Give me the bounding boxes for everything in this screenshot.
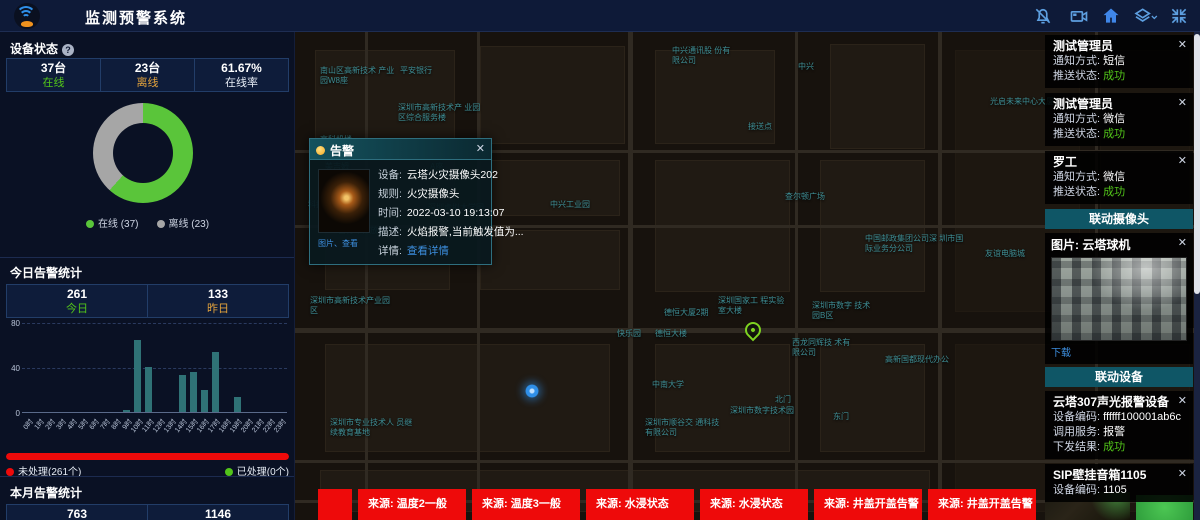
map-label: 南山区高新技术 产业园W8座: [320, 66, 400, 86]
alert-field-row: 设备:云塔火灾摄像头202: [378, 166, 488, 185]
map-label: 中兴工业园: [550, 200, 590, 210]
card-row: 通知方式: 短信: [1053, 54, 1185, 69]
alert-source-tile[interactable]: 来源: 水浸状态: [700, 489, 808, 520]
map-label: 中兴通讯股 份有限公司: [672, 46, 734, 66]
linked-device-header: 联动设备: [1045, 367, 1193, 387]
map-location-dot-icon[interactable]: [525, 384, 539, 398]
today-alerts-stats: 261 今日 133 昨日: [6, 284, 289, 318]
donut-legend: 在线 (37)离线 (23): [0, 215, 295, 230]
map-label: 深圳市高新技术产 业园区综合服务楼: [398, 103, 488, 123]
home-icon[interactable]: [1100, 6, 1122, 26]
unhandled-dot-icon: [6, 468, 14, 476]
device-status-donut-chart: [93, 103, 193, 203]
left-panel: 设备状态? 37台 在线 23台 离线 61.67% 在线率 在线 (37)离线…: [0, 32, 295, 520]
camera-snapshot-image[interactable]: [1051, 257, 1187, 341]
map-label: 北门: [775, 395, 791, 405]
bar: [190, 372, 197, 413]
app-header: 监测预警系统: [0, 0, 1200, 32]
card-row: 设备编码: ffffff100001ab6c: [1053, 410, 1185, 425]
alert-fields: 设备:云塔火灾摄像头202规则:火灾摄像头时间:2022-03-10 19:13…: [378, 166, 488, 261]
map-label: 平安银行: [400, 66, 432, 76]
month-alerts-title: 本月告警统计: [10, 484, 82, 501]
monitoring-dashboard: 监测预警系统 南山区高新技术: [0, 0, 1200, 520]
close-icon[interactable]: ✕: [1178, 154, 1187, 167]
linked-device-card: SIP壁挂音箱1105✕设备编码: 1105: [1045, 464, 1193, 502]
bar: [145, 367, 152, 412]
stat-online-rate: 61.67% 在线率: [195, 59, 288, 91]
notification-stack: 测试管理员✕通知方式: 短信推送状态: 成功测试管理员✕通知方式: 微信推送状态…: [1045, 35, 1193, 204]
map-label: 深圳市高新技术产业园区: [310, 296, 395, 316]
close-icon[interactable]: ✕: [1178, 96, 1187, 109]
alert-popup: 告警 ✕ 图片、查看 设备:云塔火灾摄像头202规则:火灾摄像头时间:2022-…: [309, 138, 492, 265]
card-row: 推送状态: 成功: [1053, 185, 1185, 200]
map-label: 深圳市顺谷交 通科技有限公司: [645, 418, 725, 438]
linked-device-stack: 云塔307声光报警设备✕设备编码: ffffff100001ab6c调用服务: …: [1045, 391, 1193, 502]
card-row: 调用服务: 报警: [1053, 425, 1185, 440]
alert-field-row: 描述:火焰报警,当前触发值为...: [378, 223, 488, 242]
notification-card: 测试管理员✕通知方式: 微信推送状态: 成功: [1045, 93, 1193, 146]
card-row: 通知方式: 微信: [1053, 170, 1185, 185]
bell-icon[interactable]: [1032, 6, 1054, 26]
video-camera-icon[interactable]: [1068, 6, 1090, 26]
map-label: 深圳市专业技术人 员继续教育基地: [330, 418, 420, 438]
alert-source-tile[interactable]: 来源: 温度3一般: [472, 489, 580, 520]
bar: [123, 410, 130, 412]
app-title: 监测预警系统: [85, 7, 187, 28]
map-label: 德恒大厦2期: [664, 308, 708, 318]
card-title: 罗工: [1053, 155, 1185, 170]
map-label: 西龙同辉技 术有限公司: [792, 338, 854, 358]
card-row: 通知方式: 微信: [1053, 112, 1185, 127]
popup-title: 告警: [330, 144, 354, 158]
alarm-bulb-icon: [316, 146, 325, 155]
bar: [212, 352, 219, 412]
map-label: 德恒大楼: [655, 329, 687, 339]
alert-field-row: 规则:火灾摄像头: [378, 185, 488, 204]
card-row: 下发结果: 成功: [1053, 440, 1185, 455]
unhandled-progress-fill: [6, 453, 289, 460]
card-title: 云塔307声光报警设备: [1053, 395, 1185, 410]
close-icon[interactable]: ✕: [1178, 236, 1187, 249]
scrollbar[interactable]: [1194, 32, 1200, 520]
card-row: 推送状态: 成功: [1053, 69, 1185, 84]
stat-month-2: 1146: [148, 505, 288, 520]
device-status-title: 设备状态?: [10, 40, 74, 57]
y-axis-tick: 80: [8, 319, 20, 328]
right-panel: 测试管理员✕通知方式: 短信推送状态: 成功测试管理员✕通知方式: 微信推送状态…: [1045, 35, 1193, 507]
linked-camera-card: 图片: 云塔球机 ✕ 下载: [1045, 233, 1193, 364]
map-label: 友谊电脑城: [985, 249, 1025, 259]
bar: [201, 390, 208, 413]
map-label: 查尔顿广场: [785, 192, 825, 202]
alert-progress-bar: [6, 453, 289, 460]
close-icon[interactable]: ✕: [476, 142, 485, 156]
fullscreen-icon[interactable]: [1168, 6, 1190, 26]
notification-card: 测试管理员✕通知方式: 短信推送状态: 成功: [1045, 35, 1193, 88]
card-title: SIP壁挂音箱1105: [1053, 468, 1185, 483]
handled-dot-icon: [225, 468, 233, 476]
stat-offline: 23台 离线: [101, 59, 195, 91]
month-alerts-stats: 763 1146: [6, 504, 289, 520]
alert-source-tile[interactable]: 来源: 井盖开盖告警: [928, 489, 1036, 520]
stat-month-1: 763: [7, 505, 148, 520]
today-alerts-title: 今日告警统计: [10, 264, 82, 281]
legend-item: 离线 (23): [157, 219, 210, 230]
map-label: 深圳市数字技术园: [730, 406, 794, 416]
app-logo-icon: [14, 3, 40, 29]
camera-card-title: 图片: 云塔球机: [1051, 238, 1187, 253]
map-label: 深圳市数字 技术园B区: [812, 301, 874, 321]
stat-yesterday: 133 昨日: [148, 285, 288, 317]
map-label: 中兴: [798, 62, 814, 72]
map-label: 高新国都现代办公: [885, 355, 949, 365]
map-label: 东门: [833, 412, 849, 422]
hourly-alert-bar-chart: 804000时1时2时3时4时5时6时7时8时9时10时11时12时13时14时…: [8, 318, 289, 453]
alert-source-tile[interactable]: [318, 489, 352, 520]
linked-device-card: 云塔307声光报警设备✕设备编码: ffffff100001ab6c调用服务: …: [1045, 391, 1193, 459]
card-row: 设备编码: 1105: [1053, 483, 1185, 498]
info-icon[interactable]: ?: [62, 44, 74, 56]
view-detail-link[interactable]: 查看详情: [407, 245, 449, 257]
close-icon[interactable]: ✕: [1178, 394, 1187, 407]
alert-popup-header: 告警 ✕: [310, 139, 491, 160]
alert-source-tile[interactable]: 来源: 水浸状态: [586, 489, 694, 520]
notification-card: 罗工✕通知方式: 微信推送状态: 成功: [1045, 151, 1193, 204]
bar: [234, 397, 241, 412]
bar: [179, 375, 186, 412]
map-label: 深圳国家工 程实验室大楼: [718, 296, 788, 316]
map-label: 中南大学: [652, 380, 684, 390]
stat-today: 261 今日: [7, 285, 148, 317]
map-label: 接送点: [748, 122, 772, 132]
device-status-stats: 37台 在线 23台 离线 61.67% 在线率: [6, 58, 289, 92]
linked-camera-header: 联动摄像头: [1045, 209, 1193, 229]
map-pin-icon[interactable]: [742, 319, 765, 342]
card-title: 测试管理员: [1053, 39, 1185, 54]
snapshot-links[interactable]: 图片、查看: [318, 238, 372, 249]
layers-icon[interactable]: [1131, 6, 1161, 26]
card-row: 推送状态: 成功: [1053, 127, 1185, 142]
map-label: 快乐园: [617, 329, 641, 339]
alert-source-tile[interactable]: 来源: 井盖开盖告警: [814, 489, 922, 520]
download-link[interactable]: 下载: [1051, 344, 1187, 359]
y-axis-tick: 40: [8, 364, 20, 373]
card-title: 测试管理员: [1053, 97, 1185, 112]
bar: [134, 340, 141, 412]
alert-popup-body: 图片、查看 设备:云塔火灾摄像头202规则:火灾摄像头时间:2022-03-10…: [310, 160, 491, 168]
close-icon[interactable]: ✕: [1178, 38, 1187, 51]
alert-source-tile[interactable]: 来源: 温度2一般: [358, 489, 466, 520]
legend-item: 在线 (37): [86, 219, 139, 230]
close-icon[interactable]: ✕: [1178, 467, 1187, 480]
alert-field-row: 时间:2022-03-10 19:13:07: [378, 204, 488, 223]
map-label: 中国邮政集团公司深 圳市国际业务分公司: [865, 234, 965, 254]
y-axis-tick: 0: [8, 409, 20, 418]
stat-online: 37台 在线: [7, 59, 101, 91]
alert-snapshot-image[interactable]: [318, 169, 370, 233]
